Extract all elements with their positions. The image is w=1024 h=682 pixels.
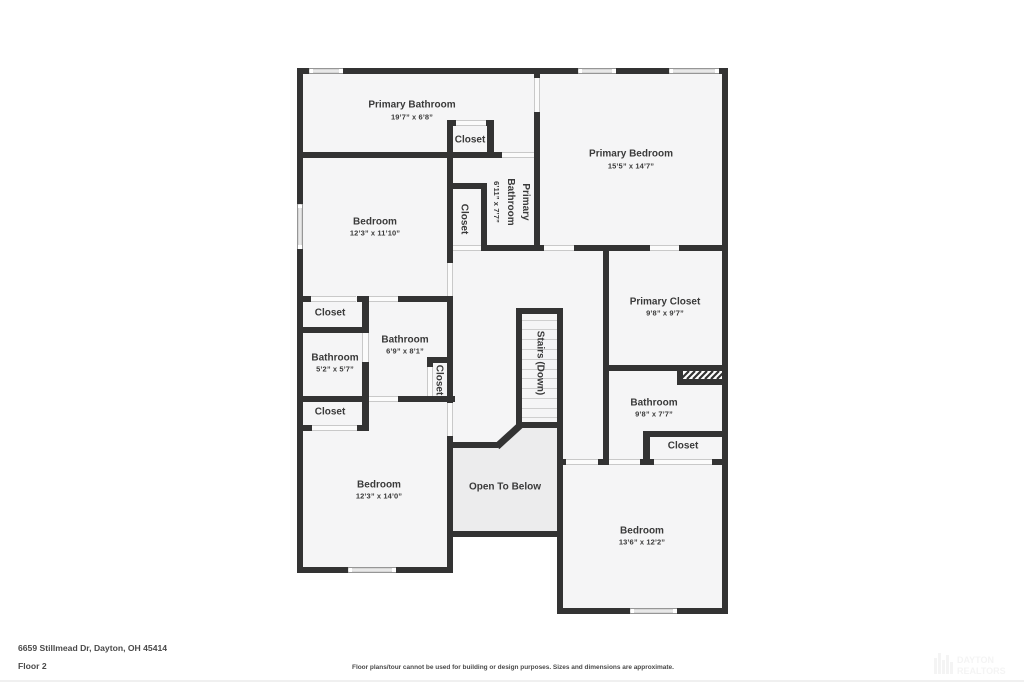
svg-text:DAYTON: DAYTON	[957, 655, 994, 665]
svg-text:REALTORS: REALTORS	[957, 666, 1006, 676]
